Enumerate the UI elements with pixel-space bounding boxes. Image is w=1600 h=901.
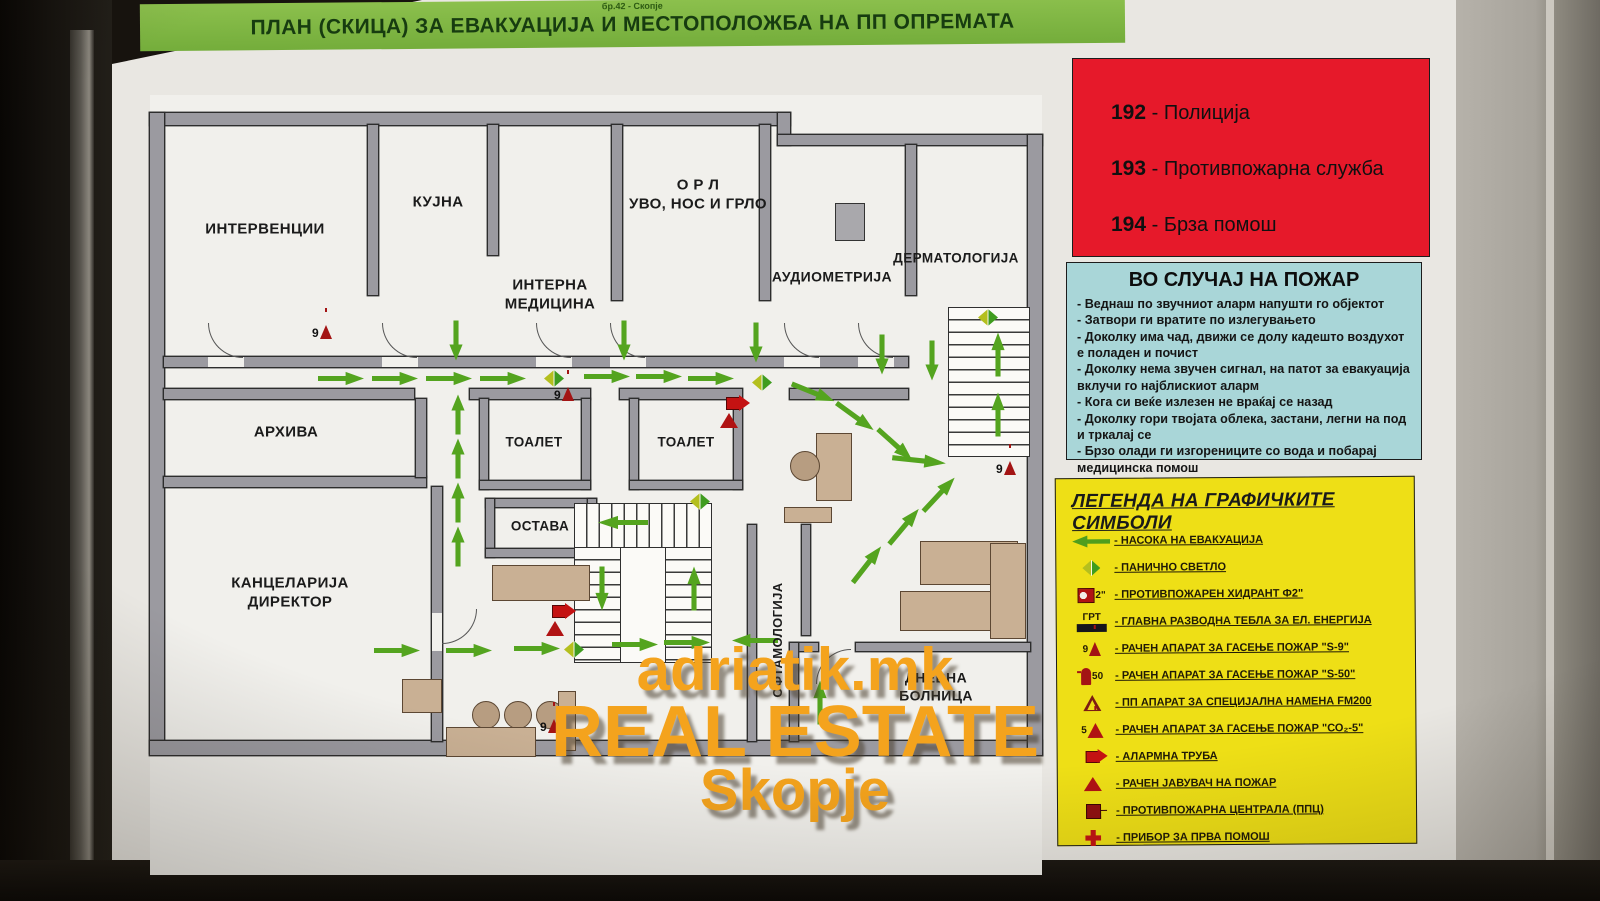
staircase-center-top bbox=[574, 503, 712, 549]
extinguisher-s9-icon: 9 bbox=[554, 387, 574, 401]
door-frame bbox=[70, 30, 94, 901]
wall bbox=[630, 481, 742, 489]
wall bbox=[480, 399, 488, 489]
instruction-item: - Доколку има чад, движи се долу кадешто… bbox=[1077, 329, 1411, 362]
staircase-right bbox=[948, 307, 1030, 457]
instruction-item: - Затвори ги вратите по излегувањето bbox=[1077, 312, 1411, 328]
wall bbox=[1028, 135, 1042, 755]
legend-panel: ЛЕГЕНДА НА ГРАФИЧКИТЕ СИМБОЛИ - НАСОКА Н… bbox=[1055, 476, 1418, 847]
wall bbox=[164, 477, 426, 487]
wall bbox=[368, 125, 378, 295]
legend-row: 5- РАЧЕН АПАРАТ ЗА ГАСЕЊЕ ПОЖАР "СО₂-5" bbox=[1069, 716, 1409, 742]
emergency-row: 193 - Противпожарна служба bbox=[1111, 157, 1384, 181]
instruction-item: - Доколку гори твојата облека, застани, … bbox=[1077, 411, 1411, 444]
room-label-kitchen: КУЈНА bbox=[413, 194, 464, 213]
evacuation-arrow-icon bbox=[514, 641, 560, 656]
legend-row: - АЛАРМНА ТРУБА bbox=[1070, 743, 1410, 769]
extinguisher-s50-icon: 50 bbox=[1069, 667, 1115, 684]
door-arc bbox=[208, 323, 243, 358]
wall bbox=[612, 125, 622, 300]
instruction-item: - Доколку нема звучен сигнал, на патот з… bbox=[1077, 361, 1411, 394]
legend-row: - ПАНИЧНО СВЕТЛО bbox=[1068, 554, 1408, 580]
armchair bbox=[402, 679, 442, 713]
legend-row: 9- РАЧЕН АПАРАТ ЗА ГАСЕЊЕ ПОЖАР "S-9" bbox=[1069, 635, 1409, 661]
wall bbox=[416, 399, 426, 477]
wall-right bbox=[1456, 0, 1600, 901]
legend-row: 50- РАЧЕН АПАРАТ ЗА ГАСЕЊЕ ПОЖАР "S-50" bbox=[1069, 662, 1409, 688]
evacuation-arrow-icon bbox=[883, 504, 924, 549]
wall bbox=[802, 525, 810, 635]
fire-instructions-title: ВО СЛУЧАЈ НА ПОЖАР bbox=[1067, 269, 1421, 292]
evacuation-arrow-icon bbox=[426, 371, 472, 386]
wall bbox=[630, 399, 638, 489]
manual-call-point-icon bbox=[546, 621, 564, 636]
pillar bbox=[835, 203, 865, 241]
room-label-dermatology: ДЕРМАТОЛОГИЈА bbox=[893, 251, 1019, 268]
door-arc bbox=[382, 323, 417, 358]
evacuation-arrow-icon bbox=[480, 371, 526, 386]
door-arc bbox=[858, 323, 893, 358]
electrical-board-icon: ГРТ bbox=[1069, 612, 1115, 631]
fire-central-icon bbox=[1070, 803, 1116, 818]
room-label-orl: О Р Л УВО, НОС И ГРЛО bbox=[629, 176, 767, 214]
room-label-interventions: ИНТЕРВЕНЦИИ bbox=[205, 221, 324, 240]
evacuation-arrow-icon bbox=[451, 395, 466, 435]
wall bbox=[778, 135, 1042, 145]
room-label-audiometry: АУДИОМЕТРИЈА bbox=[772, 268, 892, 286]
evacuation-arrow-icon bbox=[446, 643, 492, 658]
door-arc bbox=[784, 323, 819, 358]
panic-light-icon bbox=[544, 370, 564, 387]
cabinet bbox=[492, 565, 590, 601]
legend-row: 2"- ПРОТИВПОЖАРЕН ХИДРАНТ Ф2" bbox=[1068, 581, 1408, 607]
alarm-horn-icon bbox=[726, 397, 741, 410]
table bbox=[504, 701, 532, 729]
evacuation-arrow-icon bbox=[636, 369, 682, 384]
room-label-storage: ОСТАВА bbox=[511, 519, 569, 536]
desk bbox=[816, 433, 852, 501]
door-gap bbox=[432, 613, 442, 651]
alarm-horn-icon bbox=[1070, 751, 1116, 763]
wall-left bbox=[0, 0, 118, 901]
room-label-toilet: ТОАЛЕТ bbox=[505, 435, 562, 452]
evacuation-arrow-icon bbox=[451, 483, 466, 523]
wall bbox=[480, 481, 590, 489]
evacuation-arrow-icon bbox=[318, 371, 364, 386]
evacuation-arrow-icon bbox=[1068, 534, 1114, 547]
legend-row: - ПП АПАРАТ ЗА СПЕЦИЈАЛНА НАМЕНА FM200 bbox=[1069, 689, 1409, 715]
door-gap bbox=[784, 357, 820, 367]
extinguisher-s9-icon: 9 bbox=[996, 461, 1016, 475]
evacuation-arrow-icon bbox=[847, 542, 887, 587]
evacuation-arrow-icon bbox=[584, 369, 630, 384]
evacuation-arrow-icon bbox=[925, 341, 940, 381]
extinguisher-s9-icon: 9 bbox=[1069, 642, 1115, 656]
watermark-line: Skopje bbox=[700, 762, 890, 820]
door-arc bbox=[536, 323, 571, 358]
evacuation-arrow-icon bbox=[832, 397, 878, 436]
wall bbox=[150, 113, 790, 125]
fire-instructions-list: - Веднаш по звучниот аларм напушти го об… bbox=[1077, 296, 1411, 476]
header-band: бр.42 - Скопје ПЛАН (СКИЦА) ЗА ЕВАКУАЦИЈ… bbox=[140, 0, 1125, 51]
fm200-extinguisher-icon bbox=[1069, 695, 1115, 711]
room-label-internal-medicine: ИНТЕРНА МЕДИЦИНА bbox=[505, 276, 596, 314]
emergency-row: 192 - Полиција bbox=[1111, 101, 1250, 125]
legend-row: - НАСОКА НА ЕВАКУАЦИЈА bbox=[1068, 527, 1408, 553]
room-label-director-office: КАНЦЕЛАРИЈА ДИРЕКТОР bbox=[231, 574, 349, 612]
evacuation-arrow-icon bbox=[374, 643, 420, 658]
panic-light-icon bbox=[1068, 560, 1114, 576]
emergency-numbers-panel: 192 - Полиција 193 - Противпожарна служб… bbox=[1072, 58, 1430, 257]
evacuation-arrow-icon bbox=[451, 527, 466, 567]
legend-row: - ПРИБОР ЗА ПРВА ПОМОШ bbox=[1070, 824, 1410, 850]
wall bbox=[620, 389, 742, 399]
table bbox=[472, 701, 500, 729]
panic-light-icon bbox=[752, 374, 772, 391]
evacuation-plan-photo: бр.42 - Скопје ПЛАН (СКИЦА) ЗА ЕВАКУАЦИЈ… bbox=[0, 0, 1600, 901]
wall bbox=[582, 399, 590, 489]
extinguisher-s9-icon: 9 bbox=[312, 325, 332, 339]
wall bbox=[488, 125, 498, 255]
door-arc bbox=[442, 609, 477, 644]
chair bbox=[790, 451, 820, 481]
instruction-item: - Кога си веќе излезен не враќај се наза… bbox=[1077, 394, 1411, 410]
legend-row: - ПРОТИВПОЖАРНА ЦЕНТРАЛА (ППЦ) bbox=[1070, 797, 1410, 823]
emergency-row: 194 - Брза помош bbox=[1111, 213, 1277, 237]
wall bbox=[906, 145, 916, 295]
evacuation-arrow-icon bbox=[918, 473, 960, 517]
alarm-horn-icon bbox=[552, 605, 567, 618]
instruction-item: - Брзо олади ги изгорениците со вода и п… bbox=[1077, 443, 1411, 476]
extinguisher-co2-icon: 5 bbox=[1069, 722, 1115, 737]
fire-instructions-panel: ВО СЛУЧАЈ НА ПОЖАР - Веднаш по звучниот … bbox=[1066, 262, 1422, 460]
legend-row: ГРТ- ГЛАВНА РАЗВОДНА ТЕБЛА ЗА ЕЛ. ЕНЕРГИ… bbox=[1069, 608, 1409, 634]
evacuation-arrow-icon bbox=[688, 371, 734, 386]
room-label-archive: АРХИВА bbox=[254, 424, 318, 443]
first-aid-icon bbox=[1070, 830, 1116, 846]
watermark-line: adriatik.mk bbox=[637, 640, 954, 700]
wall-seam bbox=[1546, 0, 1554, 901]
manual-call-point-icon bbox=[720, 413, 738, 428]
sofa bbox=[446, 727, 536, 757]
wall bbox=[164, 389, 414, 399]
door-gap bbox=[536, 357, 572, 367]
fire-hydrant-icon: 2" bbox=[1068, 587, 1114, 602]
door-arc bbox=[610, 323, 645, 358]
legend-row: - РАЧЕН ЈАВУВАЧ НА ПОЖАР bbox=[1070, 770, 1410, 796]
bed bbox=[990, 543, 1026, 639]
wall bbox=[150, 113, 164, 753]
shelf bbox=[784, 507, 832, 523]
room-label-toilet: ТОАЛЕТ bbox=[657, 435, 714, 452]
door-gap bbox=[208, 357, 244, 367]
evacuation-arrow-icon bbox=[451, 439, 466, 479]
door-gap bbox=[610, 357, 646, 367]
evacuation-arrow-icon bbox=[372, 371, 418, 386]
instruction-item: - Веднаш по звучниот аларм напушти го об… bbox=[1077, 296, 1411, 312]
evacuation-arrow-icon bbox=[449, 321, 464, 361]
door-gap bbox=[382, 357, 418, 367]
manual-call-point-icon bbox=[1070, 777, 1116, 791]
